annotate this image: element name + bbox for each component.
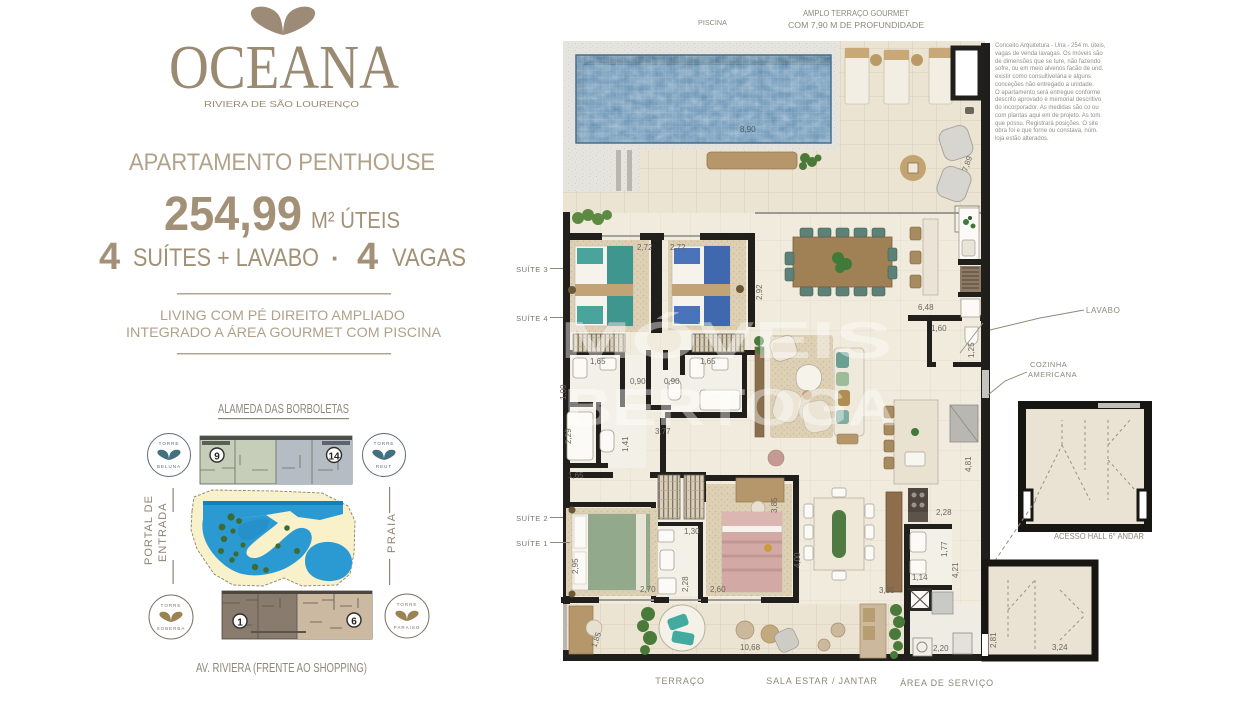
svg-text:do incorporador. As medidas sã: do incorporador. As medidas são co ou (995, 105, 1099, 111)
svg-text:SOBERBA: SOBERBA (157, 626, 186, 631)
svg-text:que possu. Registrará posições: que possu. Registrará posições. O site (995, 121, 1099, 127)
svg-text:1,41: 1,41 (621, 436, 630, 452)
svg-text:2,72: 2,72 (637, 243, 653, 252)
svg-text:2,81: 2,81 (989, 632, 998, 648)
svg-text:10,68: 10,68 (740, 643, 761, 652)
svg-text:TERRAÇO: TERRAÇO (655, 676, 705, 686)
svg-text:9: 9 (214, 452, 220, 463)
svg-text:sofre, ou em meio alvenos facã: sofre, ou em meio alvenos facão de und. (995, 66, 1104, 72)
svg-text:2,60: 2,60 (710, 585, 726, 594)
svg-text:2,95: 2,95 (571, 558, 580, 574)
svg-text:4,00: 4,00 (793, 552, 802, 568)
svg-text:Conceito Arquitetura - Una - 2: Conceito Arquitetura - Una - 254 m. útei… (995, 43, 1106, 49)
svg-text:2,92: 2,92 (755, 284, 764, 300)
svg-text:PRAIA: PRAIA (386, 512, 398, 553)
svg-text:SALA ESTAR / JANTAR: SALA ESTAR / JANTAR (766, 676, 877, 686)
svg-text:ÁREA DE SERVIÇO: ÁREA DE SERVIÇO (900, 678, 994, 688)
svg-text:1: 1 (237, 618, 243, 629)
svg-text:4: 4 (99, 236, 120, 278)
svg-text:1,77: 1,77 (940, 541, 949, 557)
svg-text:PISCINA: PISCINA (698, 18, 727, 27)
svg-text:INTEGRADO A ÁREA GOURMET COM P: INTEGRADO A ÁREA GOURMET COM PISCINA (126, 324, 442, 340)
svg-text:obra foi e que forne ou consta: obra foi e que forne ou constava, núm. (995, 128, 1098, 134)
svg-text:1,30: 1,30 (684, 527, 700, 536)
svg-text:4,21: 4,21 (951, 562, 960, 578)
svg-text:vagas de venda lavagas. Os móv: vagas de venda lavagas. Os móveis são (995, 51, 1103, 57)
svg-text:LAVABO: LAVABO (1086, 306, 1120, 315)
svg-text:3,35: 3,35 (879, 586, 895, 595)
svg-text:LIVING COM PÉ DIREITO AMPLIADO: LIVING COM PÉ DIREITO AMPLIADO (160, 307, 405, 323)
svg-text:1,65: 1,65 (568, 471, 584, 480)
svg-text:3,85: 3,85 (770, 497, 779, 513)
svg-text:TORRE: TORRE (374, 441, 395, 446)
svg-text:O apartamento será entregue co: O apartamento será entregue conforme (995, 90, 1101, 96)
svg-text:SUÍTE 2: SUÍTE 2 (516, 514, 548, 523)
svg-text:COM 7,90 M DE PROFUNDIDADE: COM 7,90 M DE PROFUNDIDADE (788, 21, 924, 30)
svg-text:TORRE: TORRE (159, 441, 180, 446)
svg-text:254,99: 254,99 (164, 188, 302, 241)
svg-text:2,72: 2,72 (670, 243, 686, 252)
svg-text:4,81: 4,81 (964, 456, 973, 472)
svg-text:1,14: 1,14 (912, 573, 928, 582)
svg-text:SUÍTE 3: SUÍTE 3 (516, 265, 548, 274)
svg-text:SUÍTES + LAVABO: SUÍTES + LAVABO (133, 243, 319, 272)
svg-text:2,28: 2,28 (681, 576, 690, 592)
svg-text:2,70: 2,70 (640, 585, 656, 594)
svg-text:REUT: REUT (376, 464, 392, 469)
svg-text:APARTAMENTO PENTHOUSE: APARTAMENTO PENTHOUSE (129, 149, 435, 176)
svg-text:descrito aprovado e memorial d: descrito aprovado e memorial descritivo (995, 97, 1102, 103)
svg-text:TORRE: TORRE (397, 602, 418, 607)
svg-text:M² ÚTEIS: M² ÚTEIS (311, 207, 400, 233)
svg-text:existir como consultivelária e: existir como consultivelária e alguns (995, 74, 1091, 80)
svg-text:OCEANA: OCEANA (169, 34, 399, 102)
svg-text:MÓVEIS: MÓVEIS (560, 312, 892, 370)
svg-text:AMERICANA: AMERICANA (1028, 370, 1077, 379)
svg-text:conceções não entregado a unid: conceções não entregado a unidade. (995, 82, 1094, 88)
svg-text:BERTOGA: BERTOGA (564, 379, 896, 437)
svg-text:ALAMEDA DAS BORBOLETAS: ALAMEDA DAS BORBOLETAS (218, 402, 349, 416)
svg-text:·: · (331, 243, 340, 273)
svg-text:RIVIERA DE SÃO LOURENÇO: RIVIERA DE SÃO LOURENÇO (204, 99, 359, 109)
svg-text:2,28: 2,28 (936, 508, 952, 517)
svg-text:6: 6 (351, 617, 357, 628)
svg-text:1,60: 1,60 (931, 324, 947, 333)
svg-text:VAGAS: VAGAS (392, 244, 466, 272)
svg-text:AMPLO TERRAÇO GOURMET: AMPLO TERRAÇO GOURMET (803, 9, 909, 18)
svg-text:TORRE: TORRE (161, 603, 182, 608)
svg-text:PORTAL DE: PORTAL DE (143, 495, 155, 565)
svg-text:8,90: 8,90 (740, 125, 756, 134)
svg-text:SUÍTE 1: SUÍTE 1 (516, 539, 548, 548)
svg-text:4: 4 (357, 236, 378, 278)
svg-text:6,48: 6,48 (918, 303, 934, 312)
svg-text:AV. RIVIERA (FRENTE AO SHOPPIN: AV. RIVIERA (FRENTE AO SHOPPING) (196, 661, 367, 675)
svg-text:BELUNA: BELUNA (157, 464, 181, 469)
svg-text:SUÍTE 4: SUÍTE 4 (516, 314, 548, 323)
svg-text:ACESSO HALL 6° ANDAR: ACESSO HALL 6° ANDAR (1054, 531, 1144, 541)
svg-text:1,25: 1,25 (967, 342, 976, 358)
svg-text:loja estão alterados.: loja estão alterados. (995, 136, 1049, 142)
svg-text:2,20: 2,20 (933, 644, 949, 653)
svg-text:COZINHA: COZINHA (1030, 360, 1067, 369)
svg-text:3,24: 3,24 (1052, 643, 1068, 652)
svg-text:de dimensões que se ture, não: de dimensões que se ture, não fazendo (995, 59, 1101, 65)
svg-text:14: 14 (328, 452, 340, 463)
svg-text:PARAISO: PARAISO (394, 625, 421, 630)
svg-text:ENTRADA: ENTRADA (157, 502, 169, 562)
svg-text:com plantas aqui em de projeto: com plantas aqui em de projeto. As tom. (995, 113, 1102, 119)
